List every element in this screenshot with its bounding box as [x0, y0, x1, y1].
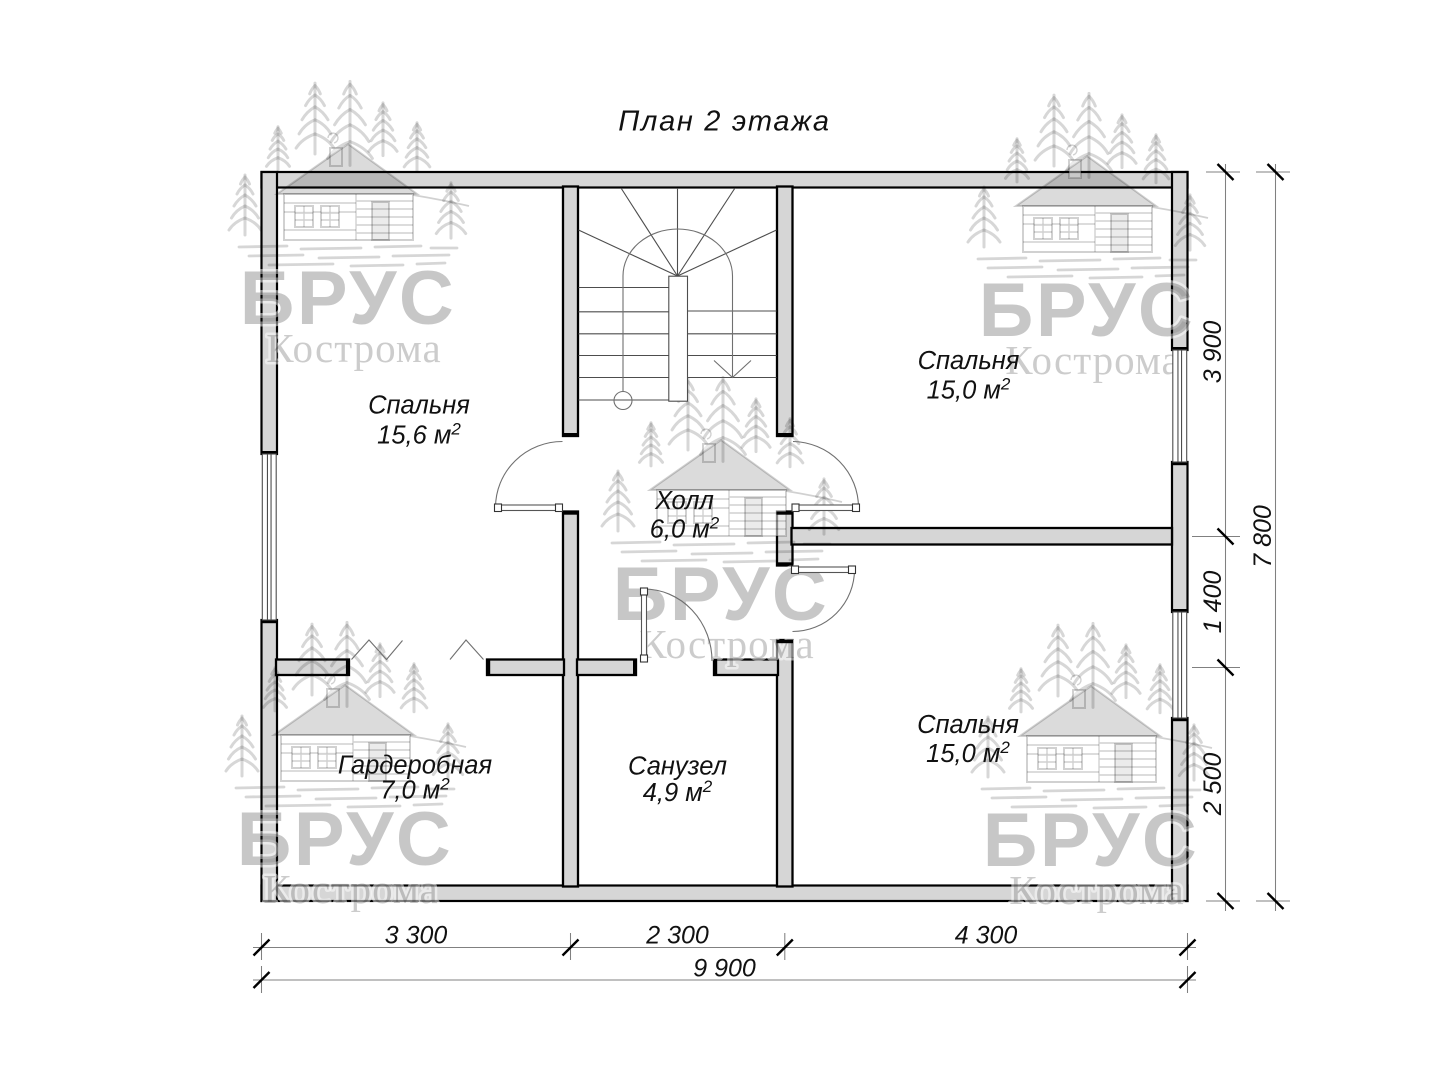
- svg-text:1 400: 1 400: [1199, 571, 1227, 634]
- svg-text:7,0 м2: 7,0 м2: [380, 774, 450, 805]
- svg-text:4 300: 4 300: [955, 922, 1018, 950]
- svg-text:15,0 м2: 15,0 м2: [927, 374, 1011, 405]
- svg-text:Гардеробная: Гардеробная: [338, 752, 493, 780]
- svg-text:Спальня: Спальня: [918, 347, 1020, 375]
- svg-text:3 300: 3 300: [385, 922, 448, 950]
- svg-text:7 800: 7 800: [1249, 505, 1277, 568]
- svg-text:Спальня: Спальня: [917, 711, 1019, 739]
- svg-text:15,0 м2: 15,0 м2: [926, 738, 1010, 769]
- svg-text:Холл: Холл: [654, 487, 714, 515]
- svg-text:9 900: 9 900: [693, 955, 756, 983]
- svg-text:Спальня: Спальня: [368, 392, 470, 420]
- svg-text:15,6 м2: 15,6 м2: [377, 419, 461, 450]
- svg-text:6,0 м2: 6,0 м2: [650, 513, 720, 544]
- svg-text:План 2 этажа: План 2 этажа: [618, 106, 830, 138]
- svg-text:2 300: 2 300: [645, 922, 709, 950]
- svg-text:4,9 м2: 4,9 м2: [643, 777, 713, 808]
- svg-text:3 900: 3 900: [1199, 321, 1227, 384]
- svg-text:2 500: 2 500: [1199, 753, 1227, 817]
